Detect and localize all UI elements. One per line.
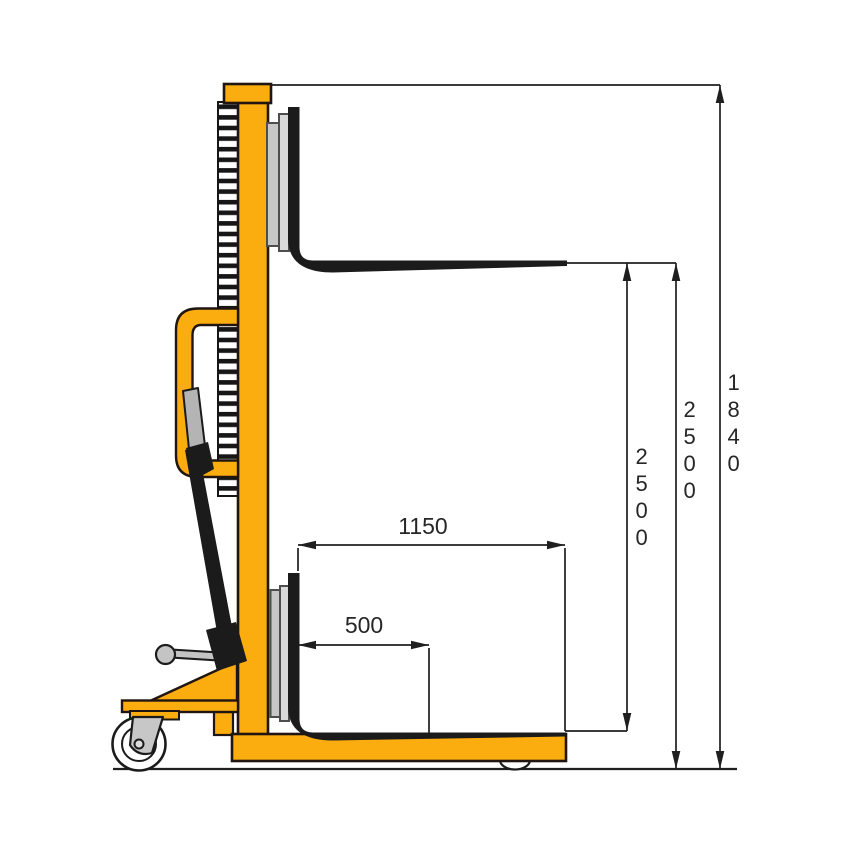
dim-label-mast-height: 1840 — [722, 370, 745, 478]
dim-label-load-center: 500 — [319, 613, 409, 637]
dimension-lines — [113, 85, 737, 769]
base-bracket — [214, 712, 233, 735]
mast — [238, 101, 268, 738]
dim-label-overall-lift: 2500 — [678, 397, 701, 505]
dimension-arrowheads — [298, 85, 724, 769]
pump-handle — [156, 645, 219, 664]
mast-chain — [218, 102, 238, 496]
dim-label-fork-length: 1150 — [378, 514, 468, 538]
diagram-canvas: 1150 500 2500 2500 1840 — [0, 0, 850, 850]
upper-carriage — [267, 114, 289, 251]
upper-fork — [288, 107, 567, 273]
caster-wheel — [113, 711, 180, 771]
mast-cap — [224, 84, 271, 103]
lower-fork — [288, 573, 566, 741]
dim-label-lift-height: 2500 — [630, 444, 653, 552]
caster-hub — [135, 740, 144, 749]
lower-carriage — [271, 586, 290, 721]
